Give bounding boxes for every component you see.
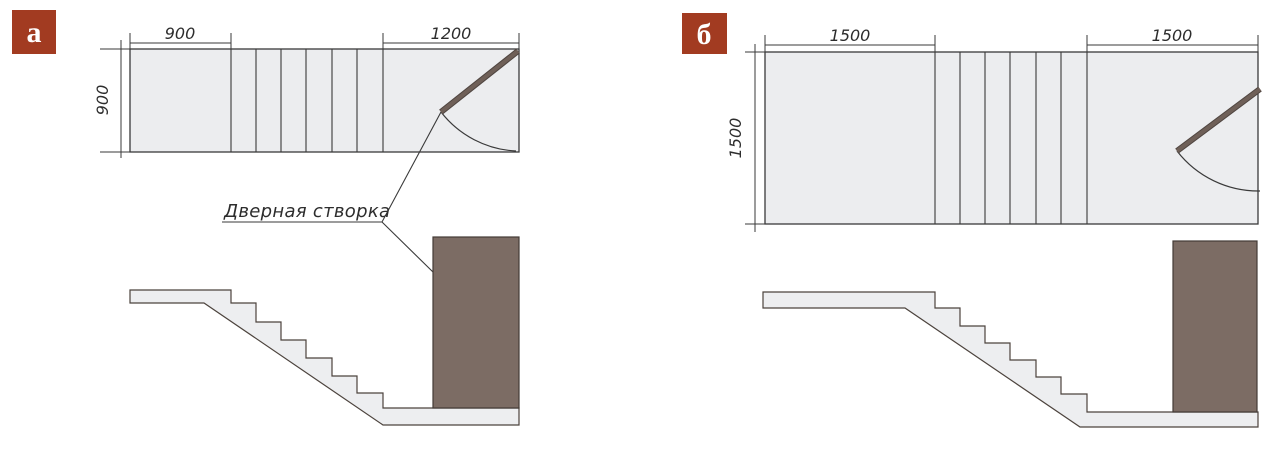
figure-b-badge: б [682,13,727,54]
figure-a-callout-label: Дверная створка [223,201,390,222]
figure-b-section-view [763,241,1258,427]
stair-layout-drawing: а 900 1200 900 Дверная створка [0,0,1272,456]
figure-a-plan-outline [130,49,519,152]
figure-a-dim-left-value: 900 [93,85,112,116]
figure-b-plan-outline [765,52,1258,224]
figure-a: а 900 1200 900 Дверная створка [12,10,519,425]
stair-drawings-svg: а 900 1200 900 Дверная створка [0,0,1272,456]
figure-a-dim-top-right-value: 1200 [431,24,472,43]
figure-a-plan-view [130,49,519,152]
figure-b-plan-view [765,52,1260,224]
figure-a-badge: а [12,10,56,54]
figure-a-section-view [130,237,519,425]
figure-b-dim-left-value: 1500 [726,118,745,159]
figure-b-dim-left-line [745,44,766,232]
figure-a-door-panel [433,237,519,408]
figure-b-dim-top-right-value: 1500 [1152,26,1193,45]
figure-b-badge-label: б [697,18,712,51]
figure-b-door-panel [1173,241,1257,412]
figure-a-badge-label: а [27,16,42,49]
figure-b: б 1500 1500 1500 [682,13,1260,427]
figure-a-dim-top-left-value: 900 [165,24,196,43]
figure-b-dim-top-left-value: 1500 [830,26,871,45]
